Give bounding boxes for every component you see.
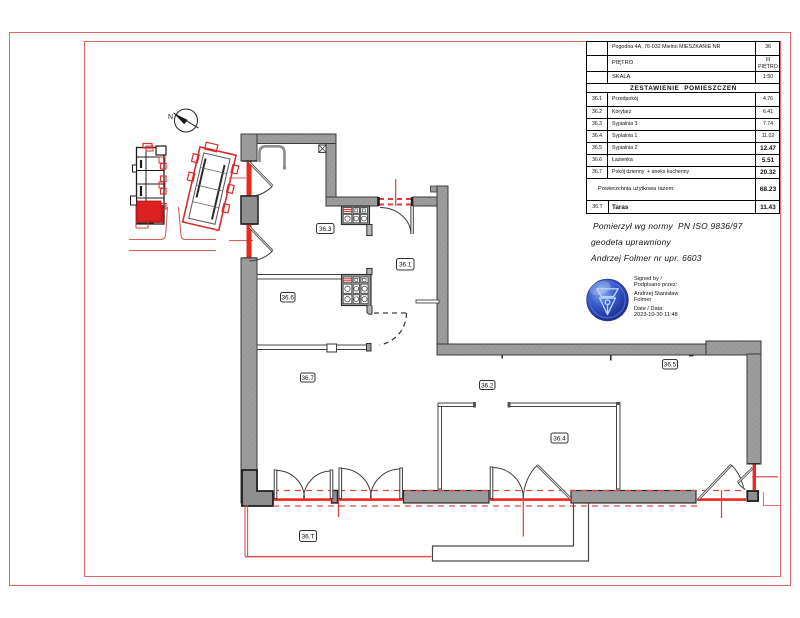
- svg-text:36.2: 36.2: [481, 382, 494, 389]
- svg-text:36.6: 36.6: [281, 295, 294, 302]
- svg-text:36.T: 36.T: [302, 534, 315, 541]
- svg-text:36.1: 36.1: [399, 262, 412, 269]
- svg-text:36.5: 36.5: [664, 362, 677, 369]
- svg-text:36.4: 36.4: [553, 435, 566, 442]
- svg-text:36.3: 36.3: [319, 226, 332, 233]
- svg-text:N: N: [168, 114, 173, 121]
- svg-text:36.7: 36.7: [301, 375, 314, 382]
